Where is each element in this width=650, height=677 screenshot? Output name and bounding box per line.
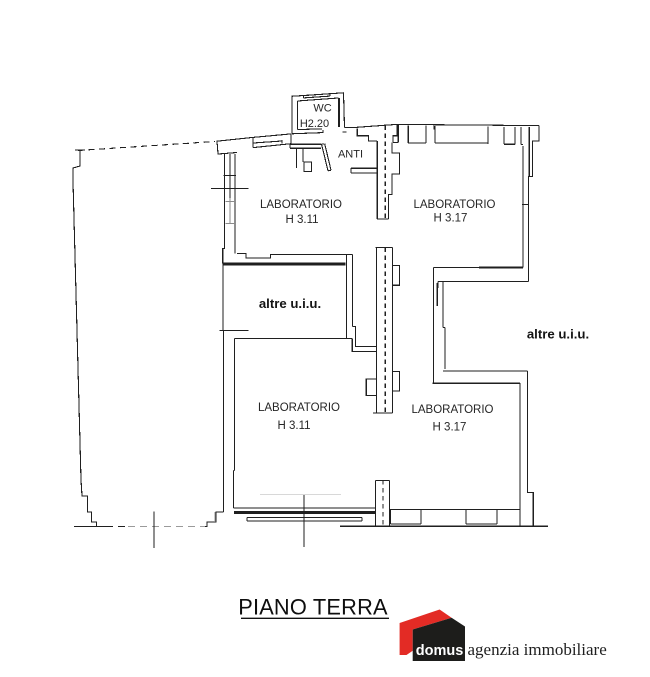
svg-text:WC: WC bbox=[313, 103, 331, 115]
svg-text:H2.20: H2.20 bbox=[300, 118, 329, 130]
svg-text:LABORATORIO: LABORATORIO bbox=[411, 404, 493, 416]
svg-text:H 3.17: H 3.17 bbox=[434, 213, 468, 225]
svg-text:H 3.11: H 3.11 bbox=[277, 420, 310, 432]
svg-text:altre u.i.u.: altre u.i.u. bbox=[527, 327, 589, 342]
svg-text:agenzia immobiliare: agenzia immobiliare bbox=[468, 640, 607, 659]
svg-text:PIANO TERRA: PIANO TERRA bbox=[238, 595, 388, 620]
svg-text:altre u.i.u.: altre u.i.u. bbox=[259, 296, 321, 311]
svg-text:ANTI: ANTI bbox=[338, 149, 363, 161]
svg-text:domus: domus bbox=[416, 643, 464, 659]
svg-text:LABORATORIO: LABORATORIO bbox=[413, 199, 495, 211]
svg-text:H 3.17: H 3.17 bbox=[433, 422, 467, 434]
svg-text:LABORATORIO: LABORATORIO bbox=[260, 199, 342, 211]
svg-text:LABORATORIO: LABORATORIO bbox=[258, 402, 340, 414]
svg-text:H 3.11: H 3.11 bbox=[285, 214, 318, 226]
